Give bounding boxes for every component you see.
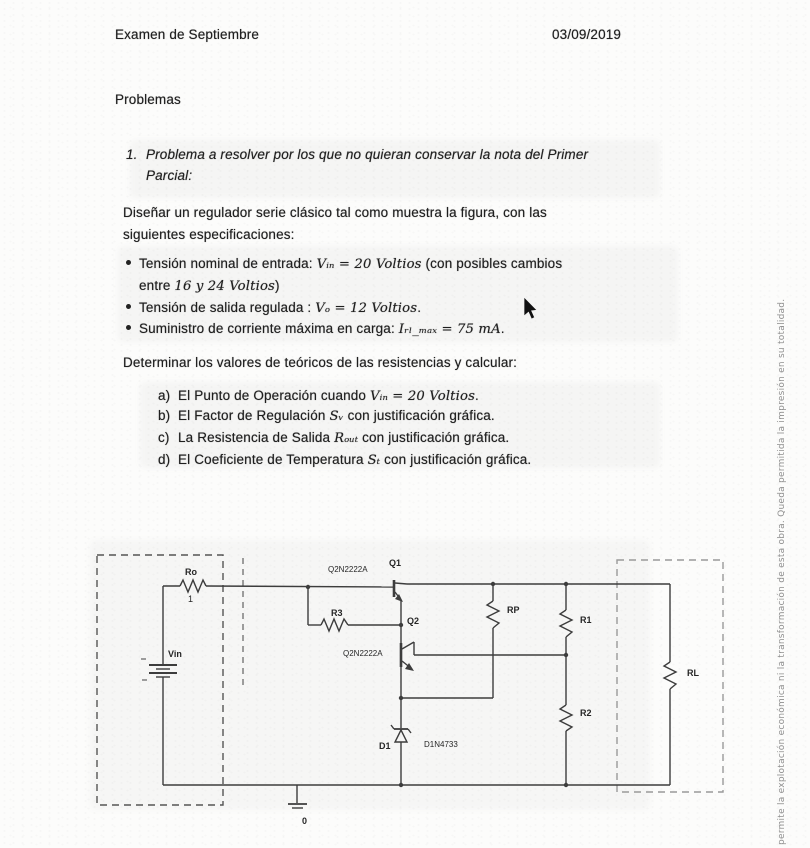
ground-symbol	[288, 785, 307, 808]
q2-label: Q2	[407, 616, 419, 626]
d1-zener-diode-symbol	[391, 725, 411, 785]
rp-label: RP	[507, 605, 520, 615]
ro-value-label: 1	[188, 594, 193, 604]
ro-resistor-symbol	[163, 580, 206, 592]
r1-resistor-symbol	[560, 584, 572, 655]
ground-zero-label: 0	[302, 816, 307, 826]
rl-label: RL	[687, 668, 699, 678]
q2-model-label: Q2N2222A	[343, 649, 383, 658]
scanned-exam-page: { "header": { "title": "Examen de Septie…	[0, 0, 810, 848]
vin-source-boundary-box	[97, 555, 223, 805]
r2-label: R2	[580, 708, 592, 718]
r3-resistor-symbol	[308, 587, 401, 631]
r3-label: R3	[331, 608, 343, 618]
vin-to-q1-wire	[206, 586, 393, 587]
mouse-cursor	[524, 297, 537, 319]
r1-label: R1	[580, 615, 592, 625]
d1-label: D1	[379, 741, 391, 751]
junction-dots	[306, 582, 568, 787]
q2-transistor-symbol	[401, 642, 414, 671]
circuit-diagram: Ro 1 Vin Q2N2222A Q1 R3 Q2 Q2N2222A RP R…	[0, 0, 810, 848]
copyright-watermark: permite la explotación económica ni la t…	[777, 233, 787, 845]
vin-battery-symbol	[141, 586, 177, 785]
r2-resistor-symbol	[560, 655, 572, 785]
vin-label: Vin	[168, 649, 182, 659]
q1-model-label: Q2N2222A	[328, 565, 368, 574]
rl-resistor-symbol	[664, 584, 676, 785]
ro-label: Ro	[185, 567, 197, 577]
q1-label: Q1	[389, 558, 401, 568]
rp-resistor-symbol	[487, 584, 499, 698]
d1-model-label: D1N4733	[424, 740, 458, 749]
q1-transistor-symbol	[394, 580, 407, 602]
